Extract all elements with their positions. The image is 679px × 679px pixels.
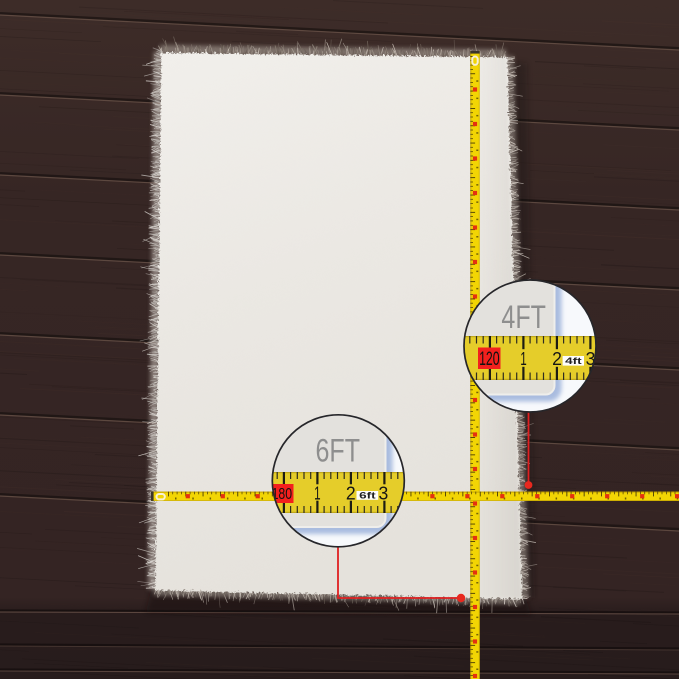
svg-text:4ft: 4ft — [565, 356, 583, 367]
svg-text:6ft: 6ft — [359, 491, 377, 502]
svg-text:3: 3 — [379, 484, 389, 504]
svg-text:120: 120 — [479, 349, 500, 370]
svg-text:2: 2 — [552, 349, 562, 369]
svg-text:4FT: 4FT — [501, 299, 546, 335]
svg-text:1: 1 — [314, 484, 321, 504]
svg-text:2: 2 — [346, 484, 356, 504]
svg-text:1: 1 — [520, 349, 527, 369]
svg-text:6FT: 6FT — [316, 433, 361, 469]
